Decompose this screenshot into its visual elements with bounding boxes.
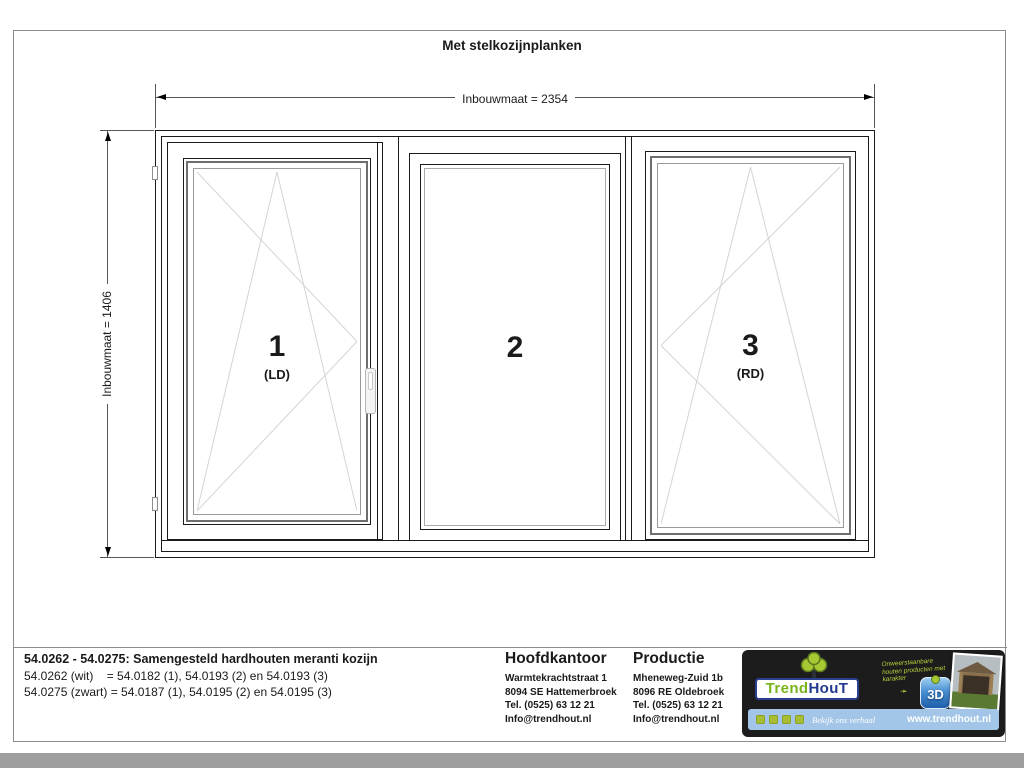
mullion-line xyxy=(625,136,626,540)
mullion-line xyxy=(398,136,399,540)
logo-footer-bar: Bekijk ons verhaal www.trendhout.nl xyxy=(748,709,999,730)
panel3-number: 3 xyxy=(661,331,840,361)
social-icon[interactable] xyxy=(782,715,791,724)
productie-heading: Productie xyxy=(633,650,724,668)
social-icon[interactable] xyxy=(795,715,804,724)
titleblock-separator xyxy=(13,647,1007,648)
logo-tagline: Bekijk ons verhaal xyxy=(812,715,875,725)
dim-width-label: Inbouwmaat = 2354 xyxy=(455,92,575,106)
dim-height-label: Inbouwmaat = 1406 xyxy=(100,284,114,404)
dim-extension-line xyxy=(874,84,875,128)
hoofdkantoor-phone: Tel. (0525) 63 12 21 xyxy=(505,699,617,713)
slogan-arrow-icon: ➛ xyxy=(900,686,908,697)
panel1-hinge-label: (LD) xyxy=(197,367,357,382)
dim-arrow-down-icon xyxy=(105,547,111,556)
trendhout-logo-block: TrendHouT Onweerstaanbare houten product… xyxy=(742,650,1005,737)
dim-arrow-up-icon xyxy=(105,132,111,141)
sheet-title: Met stelkozijnplanken xyxy=(0,38,1024,53)
hinge-mark-icon xyxy=(152,166,158,180)
mullion-line xyxy=(631,136,632,540)
hoofdkantoor-block: Hoofdkantoor Warmtekrachtstraat 1 8094 S… xyxy=(505,650,617,726)
panel3-hinge-label: (RD) xyxy=(661,366,840,381)
product-title: 54.0262 - 54.0275: Samengesteld hardhout… xyxy=(24,652,378,666)
hinge-mark-icon xyxy=(152,497,158,511)
productie-phone: Tel. (0525) 63 12 21 xyxy=(633,699,724,713)
productie-street: Mheneweg-Zuid 1b xyxy=(633,672,724,686)
social-icon[interactable] xyxy=(756,715,765,724)
dim-extension-line xyxy=(100,130,154,131)
brand-trend: Trend xyxy=(766,680,809,697)
panel1-number: 1 xyxy=(197,332,357,362)
hoofdkantoor-email: Info@trendhout.nl xyxy=(505,713,617,727)
handle-knob xyxy=(368,372,373,390)
hoofdkantoor-city: 8094 SE Hattemerbroek xyxy=(505,686,617,700)
productie-block: Productie Mheneweg-Zuid 1b 8096 RE Oldeb… xyxy=(633,650,724,726)
titleblock-product-info: 54.0262 - 54.0275: Samengesteld hardhout… xyxy=(24,652,378,699)
drawing-viewer: Met stelkozijnplanken Inbouwmaat = 2354 … xyxy=(0,0,1024,768)
window-handle-icon xyxy=(365,368,376,414)
variant-wit: 54.0262 (wit) = 54.0182 (1), 54.0193 (2)… xyxy=(24,669,378,683)
variant-zwart: 54.0275 (zwart) = 54.0187 (1), 54.0195 (… xyxy=(24,685,378,699)
dim-extension-line xyxy=(100,557,154,558)
productie-city: 8096 RE Oldebroek xyxy=(633,686,724,700)
productie-email: Info@trendhout.nl xyxy=(633,713,724,727)
social-icon[interactable] xyxy=(769,715,778,724)
panel2-number: 2 xyxy=(424,333,606,363)
website-link[interactable]: www.trendhout.nl xyxy=(907,714,991,725)
hoofdkantoor-heading: Hoofdkantoor xyxy=(505,650,617,668)
gazebo-photo xyxy=(949,652,1003,711)
trendhout-wordmark: TrendHouT xyxy=(755,678,859,700)
brand-hout: HouT xyxy=(808,680,848,697)
hoofdkantoor-street: Warmtekrachtstraat 1 xyxy=(505,672,617,686)
badge-tree-icon xyxy=(931,675,940,684)
dim-width-label-row: Inbouwmaat = 2354 xyxy=(156,90,874,108)
3d-badge-icon: 3D xyxy=(920,677,951,709)
bottom-gray-strip xyxy=(0,753,1024,768)
